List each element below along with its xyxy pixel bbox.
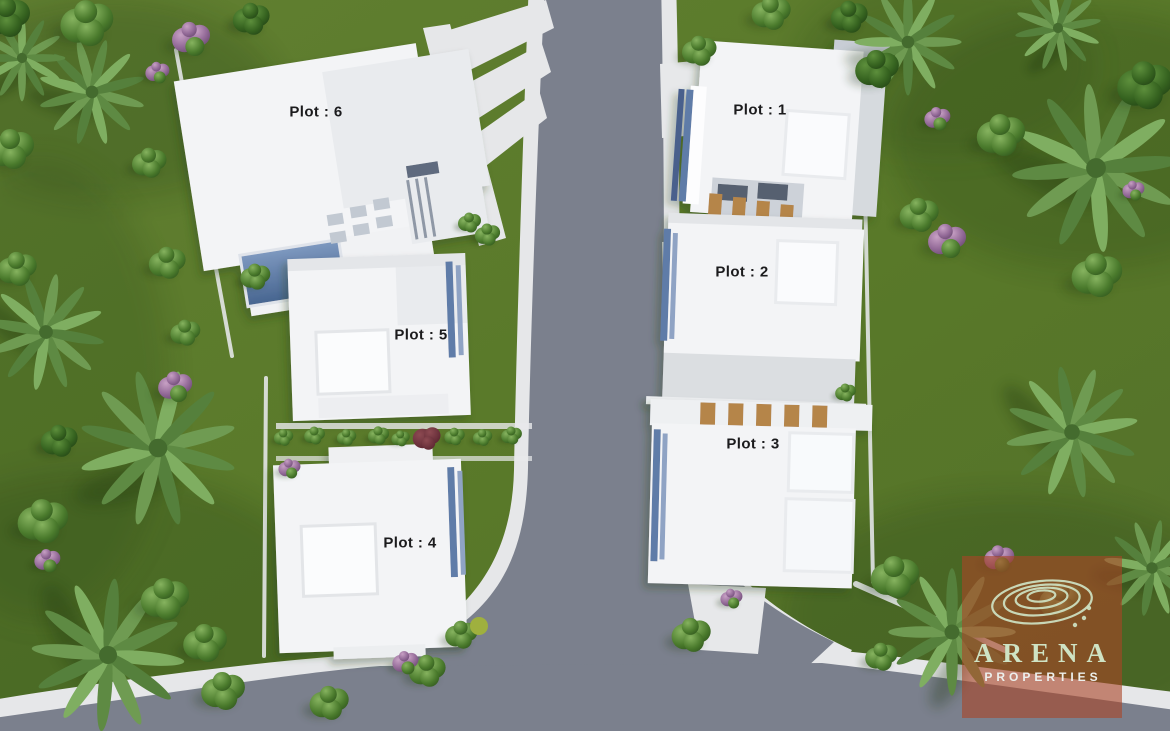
- site-plan-render: ARENA PROPERTIES Plot : 1 Plot : 2 Plot …: [0, 0, 1170, 731]
- plot-label-3[interactable]: Plot : 3: [726, 436, 779, 453]
- yellow-shrub: [470, 617, 488, 635]
- arena-rings-logo-icon: [986, 564, 1098, 638]
- building-plot-4: [272, 443, 468, 661]
- watermark-brand-text: ARENA: [969, 640, 1115, 667]
- plot-label-4[interactable]: Plot : 4: [383, 535, 436, 552]
- plot-label-6[interactable]: Plot : 6: [289, 104, 342, 121]
- plot-label-5[interactable]: Plot : 5: [394, 327, 447, 344]
- building-plot-2: [646, 212, 873, 412]
- building-plot-3: [646, 399, 873, 589]
- watermark-arena-properties: ARENA PROPERTIES: [962, 556, 1122, 718]
- plot-label-1[interactable]: Plot : 1: [733, 102, 786, 119]
- plot-label-2[interactable]: Plot : 2: [715, 264, 768, 281]
- watermark-subtitle-text: PROPERTIES: [982, 670, 1101, 684]
- wall-left-plots45: [264, 378, 266, 656]
